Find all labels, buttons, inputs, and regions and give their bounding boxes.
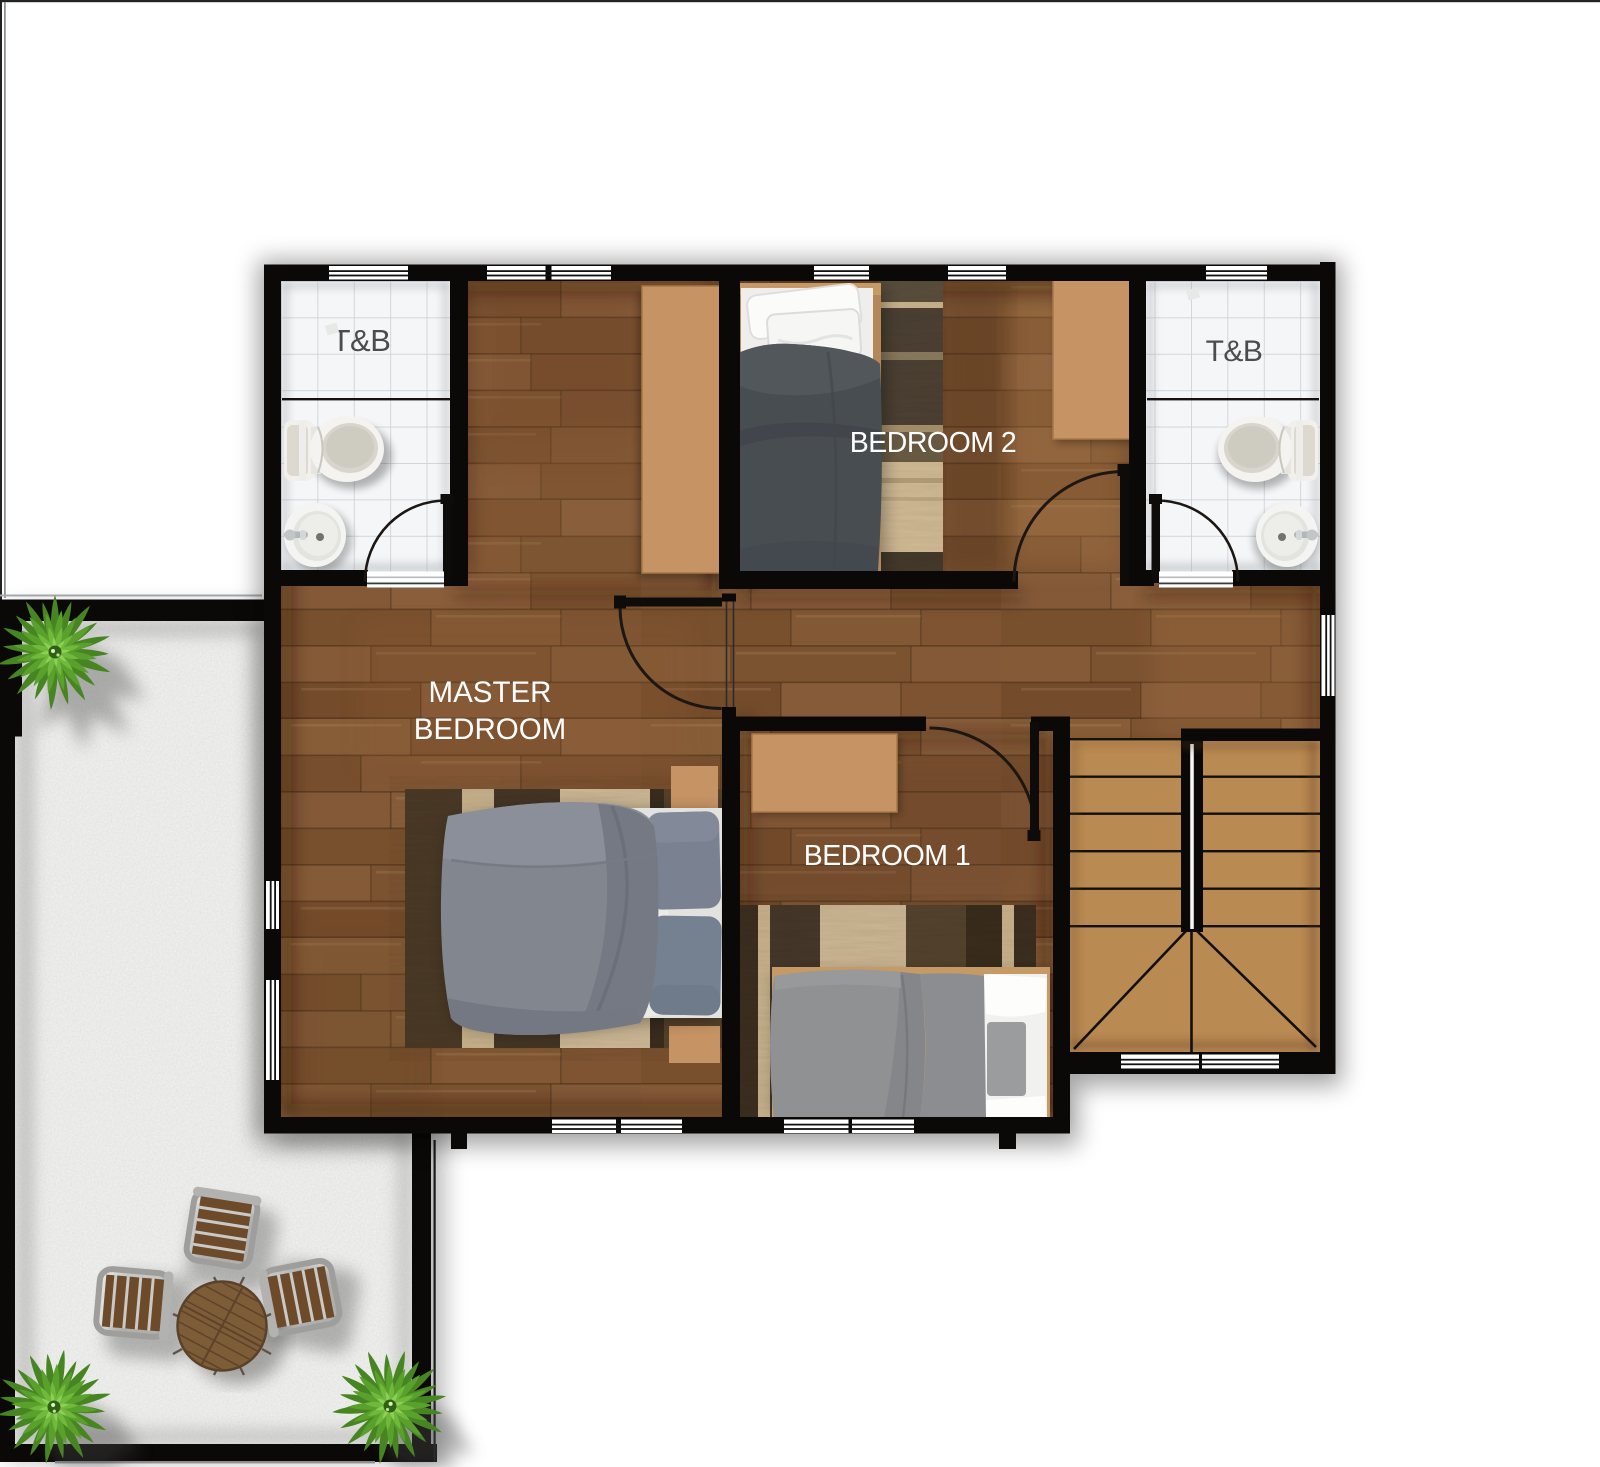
svg-text:BEDROOM: BEDROOM	[414, 713, 566, 746]
svg-text:BEDROOM 2: BEDROOM 2	[850, 427, 1017, 459]
svg-text:T&B: T&B	[1206, 335, 1263, 368]
svg-text:BEDROOM 1: BEDROOM 1	[804, 840, 971, 872]
svg-text:MASTER: MASTER	[429, 676, 552, 709]
svg-text:T&B: T&B	[332, 323, 391, 358]
